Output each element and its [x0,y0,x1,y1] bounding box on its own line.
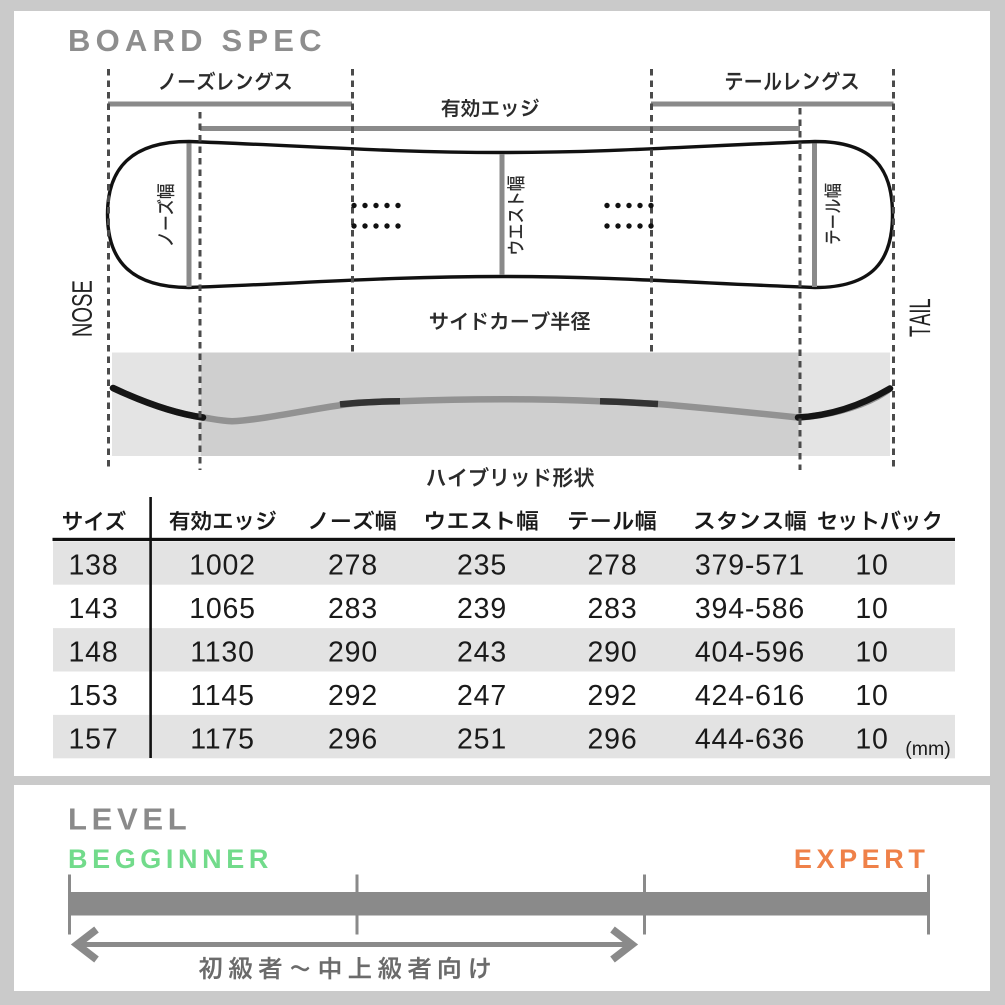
svg-text:424-616: 424-616 [695,680,805,712]
svg-text:292: 292 [328,680,378,712]
svg-text:283: 283 [328,593,378,625]
svg-text:239: 239 [457,593,507,625]
svg-text:EXPERT: EXPERT [794,844,930,874]
svg-text:1130: 1130 [190,637,255,669]
svg-text:143: 143 [69,593,119,625]
svg-text:404-596: 404-596 [695,637,805,669]
svg-text:148: 148 [69,637,119,669]
svg-text:243: 243 [457,637,507,669]
svg-text:153: 153 [69,680,119,712]
svg-text:LEVEL: LEVEL [68,802,191,837]
svg-text:290: 290 [328,637,378,669]
svg-text:1145: 1145 [190,680,255,712]
svg-text:10: 10 [855,637,888,669]
svg-text:379-571: 379-571 [695,550,805,582]
svg-text:BEGGINNER: BEGGINNER [68,844,273,874]
svg-text:10: 10 [855,593,888,625]
svg-text:296: 296 [588,723,638,755]
svg-text:444-636: 444-636 [695,723,805,755]
svg-text:10: 10 [855,550,888,582]
svg-text:138: 138 [69,550,119,582]
svg-text:(mm): (mm) [905,738,950,760]
svg-text:10: 10 [855,680,888,712]
svg-text:157: 157 [69,723,119,755]
svg-text:292: 292 [588,680,638,712]
svg-text:247: 247 [457,680,507,712]
svg-text:1002: 1002 [189,550,256,582]
svg-text:278: 278 [328,550,378,582]
svg-text:235: 235 [457,550,507,582]
svg-text:394-586: 394-586 [695,593,805,625]
svg-text:283: 283 [588,593,638,625]
svg-text:251: 251 [457,723,507,755]
svg-text:10: 10 [855,723,888,755]
svg-text:296: 296 [328,723,378,755]
svg-text:290: 290 [588,637,638,669]
svg-text:278: 278 [588,550,638,582]
svg-text:BOARD SPEC: BOARD SPEC [68,23,327,58]
svg-text:1065: 1065 [189,593,256,625]
svg-text:1175: 1175 [190,723,255,755]
